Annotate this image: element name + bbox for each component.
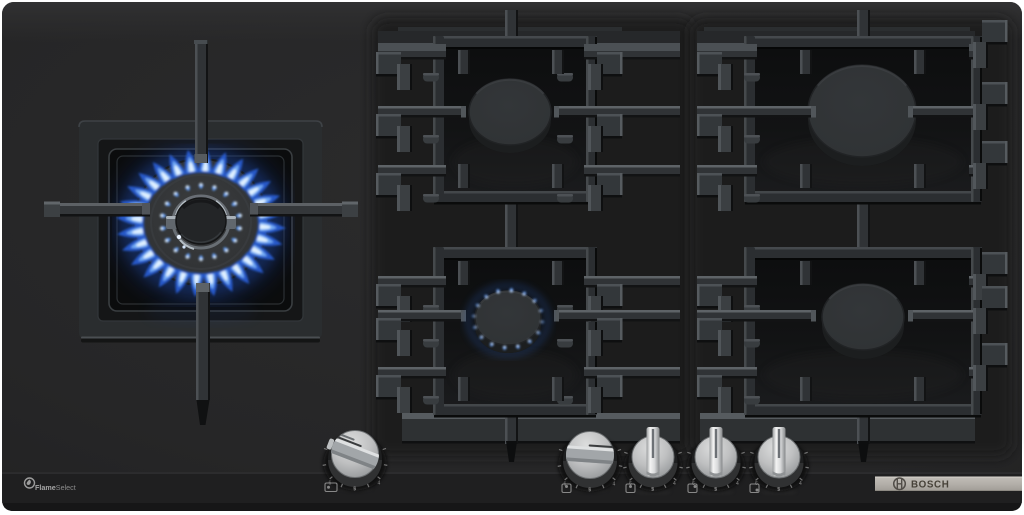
svg-text:4: 4 (673, 481, 676, 487)
svg-text:5: 5 (353, 487, 356, 493)
svg-text:5: 5 (651, 487, 654, 493)
svg-text:4: 4 (799, 481, 802, 487)
svg-text:4: 4 (378, 481, 381, 487)
svg-text:5: 5 (588, 488, 591, 494)
svg-text:4: 4 (613, 482, 616, 488)
svg-text:4: 4 (736, 481, 739, 487)
svg-text:BOSCH: BOSCH (911, 479, 949, 490)
svg-text:5: 5 (714, 487, 717, 493)
svg-text:FlameSelect: FlameSelect (35, 483, 76, 492)
svg-text:5: 5 (777, 487, 780, 493)
